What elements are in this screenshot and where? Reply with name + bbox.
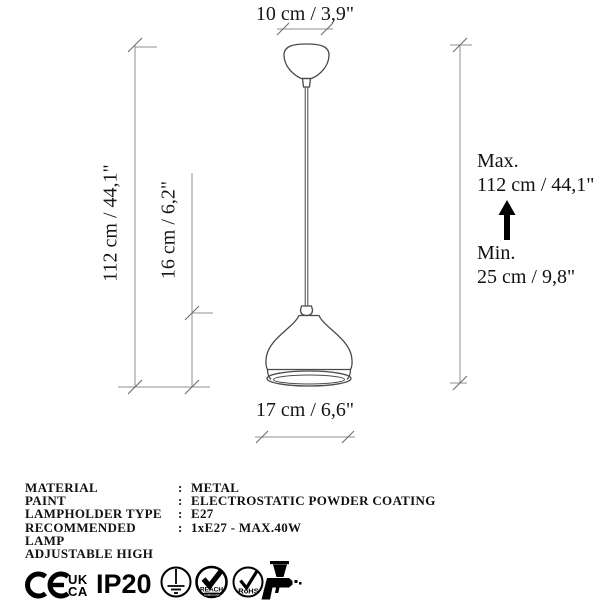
rohs-icon: RoHS — [234, 568, 263, 597]
svg-text:RoHS: RoHS — [238, 587, 258, 596]
svg-text:REACH: REACH — [200, 587, 223, 594]
ukca-mark: UK CA — [68, 574, 88, 597]
earth-symbol-icon — [162, 568, 191, 597]
ip-rating-label: IP20 — [96, 570, 152, 598]
svg-text:COMPLIANT: COMPLIANT — [204, 593, 220, 597]
ce-mark-icon: REACH COMPLIANT RoHS — [0, 0, 600, 600]
reach-compliant-icon: REACH COMPLIANT — [197, 567, 227, 597]
pendant-lamp-dimension-diagram: 10 cm / 3,9" 112 cm / 44,1" 16 cm / 6,2"… — [0, 0, 600, 600]
spray-gun-icon — [262, 561, 302, 600]
